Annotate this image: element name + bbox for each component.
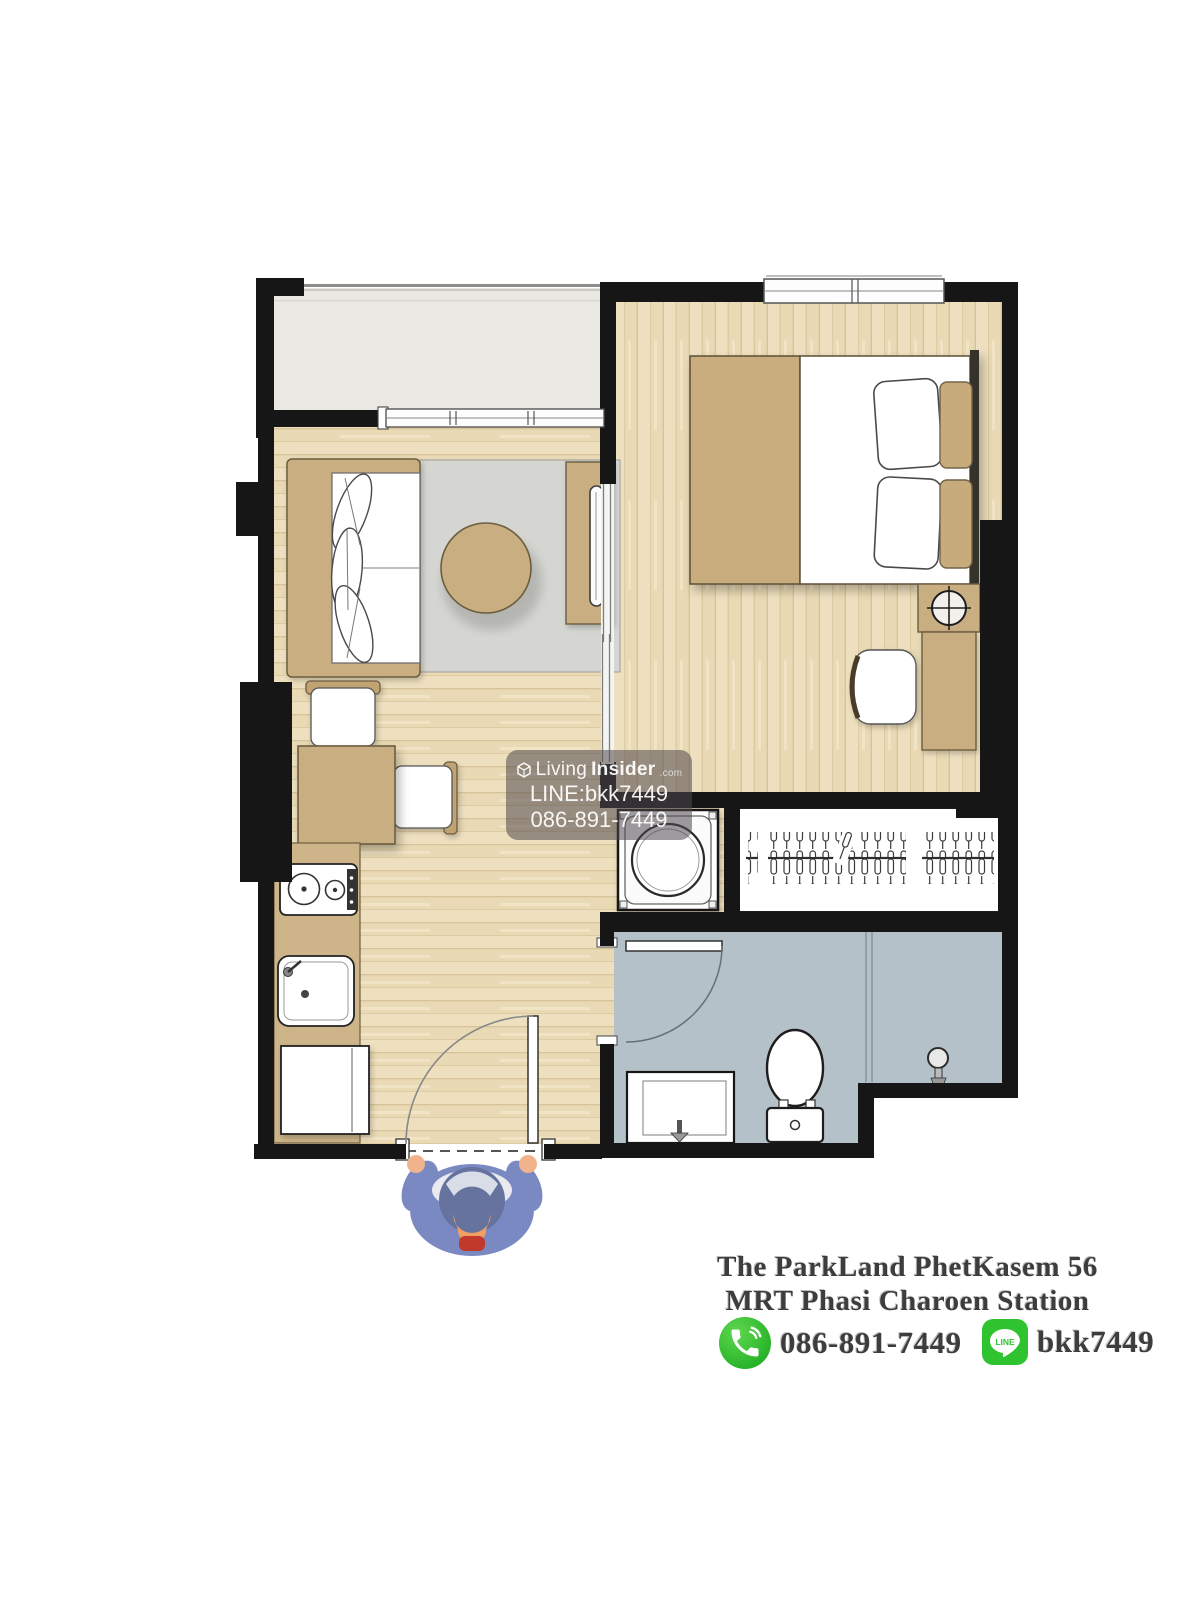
floor-plan-poster: LivingInsider.com LINE:bkk7449 086-891-7… [0, 0, 1200, 1600]
refrigerator [281, 1046, 369, 1134]
phone-contact: 086-891-7449 [718, 1316, 962, 1370]
kitchen-sink [278, 956, 354, 1026]
kitchen-counter [274, 843, 369, 1143]
pillow [940, 382, 972, 468]
bedroom-window [764, 276, 944, 303]
hangers-row-bottom [748, 859, 994, 884]
phone-number: 086-891-7449 [780, 1325, 962, 1361]
sofa [287, 459, 420, 677]
dining-table [298, 746, 395, 844]
livinginsider-logo-icon [516, 762, 532, 778]
vanity-sink [627, 1072, 734, 1143]
line-icon-label: LINE [995, 1337, 1015, 1347]
line-app-icon: LINE [981, 1318, 1029, 1366]
coffee-table [441, 523, 531, 613]
project-title: The ParkLand PhetKasem 56 MRT Phasi Char… [700, 1250, 1115, 1318]
desk-chair [852, 650, 916, 724]
watermark-brand-suffix: .com [659, 768, 682, 780]
pillow [940, 480, 972, 568]
door-leaf [626, 941, 722, 951]
pillow [874, 476, 943, 569]
nightstand [918, 584, 980, 632]
balcony-sliding-door [378, 407, 604, 429]
phone-icon [718, 1316, 772, 1370]
watermark-brand-bold: Insider [591, 759, 655, 781]
bed-blanket [690, 356, 800, 584]
pillow [873, 378, 943, 470]
balcony-railing [274, 284, 604, 287]
watermark-phone: 086-891-7449 [506, 807, 692, 833]
balcony [274, 284, 604, 412]
line-id: bkk7449 [1037, 1324, 1154, 1360]
door-leaf [528, 1016, 538, 1143]
wardrobe [738, 808, 1000, 912]
watermark-brand: LivingInsider.com [506, 759, 692, 781]
bed [690, 350, 979, 590]
faucet-icon [677, 1120, 682, 1133]
watermark-brand-light: Living [536, 759, 587, 781]
hangers-row-top [748, 832, 994, 857]
project-title-line2: MRT Phasi Charoen Station [700, 1284, 1115, 1318]
project-title-line1: The ParkLand PhetKasem 56 [700, 1250, 1115, 1284]
dining-chair-right [394, 762, 457, 834]
bedroom-sliding-partition [601, 484, 614, 764]
desk [922, 632, 976, 750]
dining-chair-top [306, 681, 380, 746]
watermark-line-id: LINE:bkk7449 [506, 781, 692, 807]
watermark: LivingInsider.com LINE:bkk7449 086-891-7… [506, 750, 692, 840]
toilet [767, 1030, 823, 1142]
line-contact: LINE bkk7449 [981, 1318, 1154, 1366]
person-figure [394, 1155, 550, 1256]
